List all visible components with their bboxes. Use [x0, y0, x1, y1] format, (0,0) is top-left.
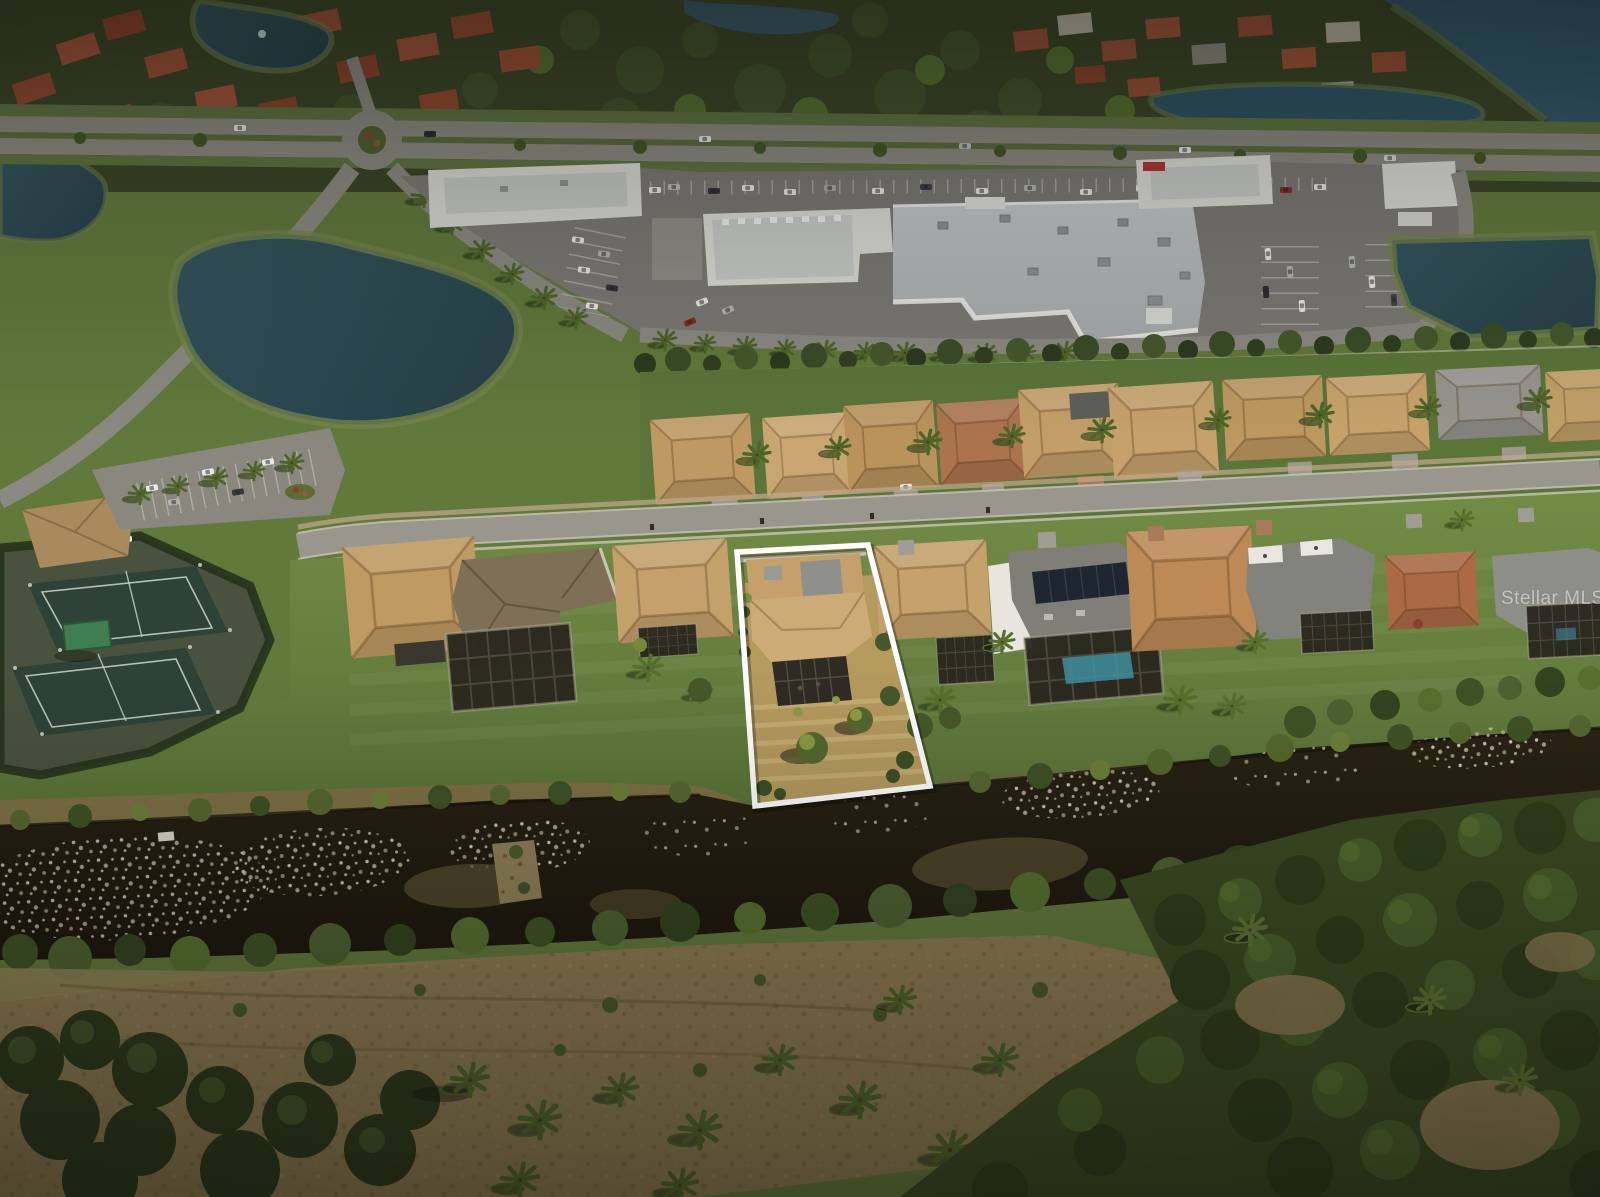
watermark-stellar-mls: Stellar MLS	[1501, 588, 1600, 610]
aerial-photo: Stellar MLS	[0, 0, 1600, 1197]
rock-weir	[492, 840, 542, 904]
plaza-pond	[173, 234, 519, 424]
retail-building-right	[1136, 155, 1273, 209]
dock	[158, 831, 175, 841]
clubhouse-parking	[92, 428, 345, 530]
white-gable-home	[1246, 538, 1375, 654]
plaza-annex-building	[652, 208, 893, 286]
roundabout	[342, 110, 402, 170]
aerial-scene	[0, 0, 1600, 1197]
